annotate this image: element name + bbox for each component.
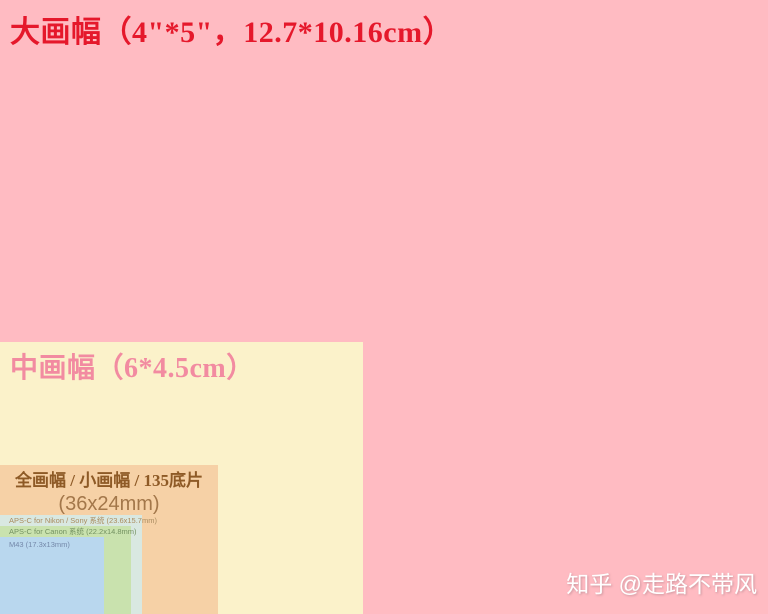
m43-label: M43 (17.3x13mm) <box>9 541 70 549</box>
sensor-size-comparison-diagram: 大画幅（4"*5"，12.7*10.16cm） 中画幅（6*4.5cm） 全画幅… <box>0 0 768 614</box>
m43-rect: M43 (17.3x13mm) <box>0 537 104 614</box>
medium-format-label: 中画幅（6*4.5cm） <box>10 353 255 385</box>
apsc-nikon-sony-label: APS-C for Nikon / Sony 系统 (23.6x15.7mm) <box>9 517 157 525</box>
full-frame-dimensions-label: (36x24mm) <box>0 492 218 516</box>
large-format-label: 大画幅（4"*5"，12.7*10.16cm） <box>10 16 453 51</box>
full-frame-label: 全画幅 / 小画幅 / 135底片 <box>0 471 218 491</box>
apsc-canon-label: APS-C for Canon 系统 (22.2x14.8mm) <box>9 528 137 536</box>
zhihu-watermark: 知乎 @走路不带风 <box>566 571 757 599</box>
